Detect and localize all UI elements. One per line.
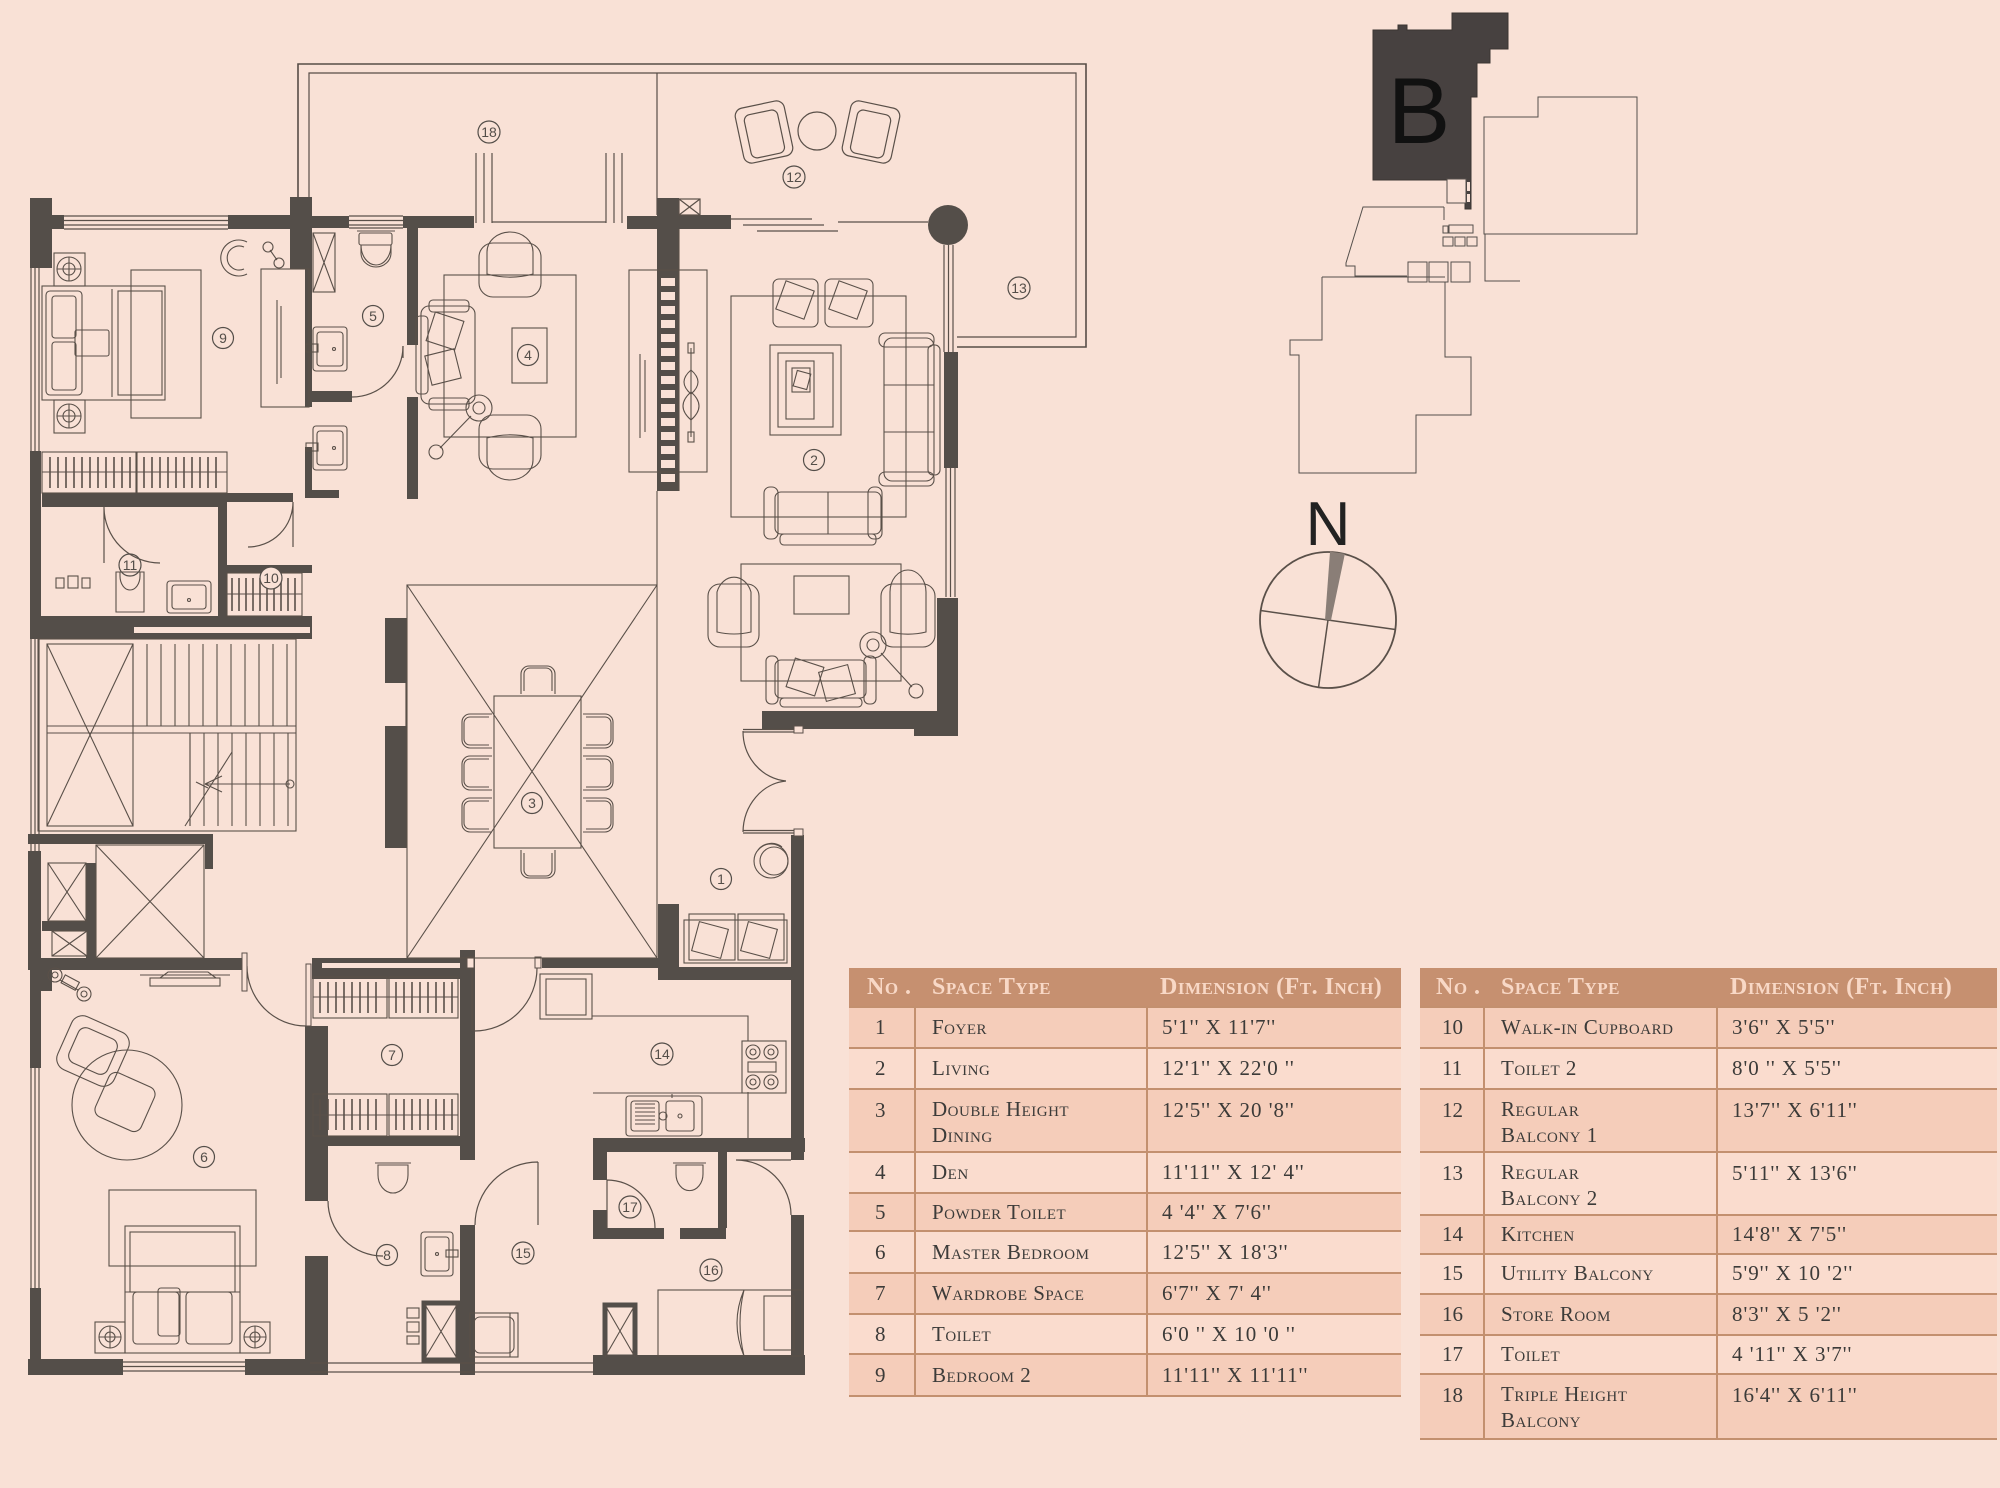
svg-text:9: 9 [219, 330, 227, 346]
svg-text:8: 8 [383, 1247, 391, 1263]
svg-text:7: 7 [388, 1047, 396, 1063]
svg-text:2: 2 [810, 452, 818, 468]
svg-text:17: 17 [622, 1199, 638, 1215]
svg-text:15: 15 [515, 1245, 531, 1261]
svg-text:3: 3 [528, 795, 536, 811]
svg-text:B: B [1388, 58, 1451, 163]
svg-text:4: 4 [524, 347, 532, 363]
svg-text:5: 5 [369, 308, 377, 324]
svg-text:N: N [1306, 490, 1351, 559]
svg-text:6: 6 [200, 1149, 208, 1165]
svg-text:18: 18 [481, 124, 497, 140]
svg-text:12: 12 [786, 169, 802, 185]
svg-text:16: 16 [703, 1262, 719, 1278]
svg-text:13: 13 [1011, 280, 1027, 296]
svg-text:1: 1 [717, 871, 725, 887]
svg-text:11: 11 [123, 557, 138, 573]
svg-text:10: 10 [263, 570, 279, 586]
svg-text:14: 14 [654, 1046, 670, 1062]
